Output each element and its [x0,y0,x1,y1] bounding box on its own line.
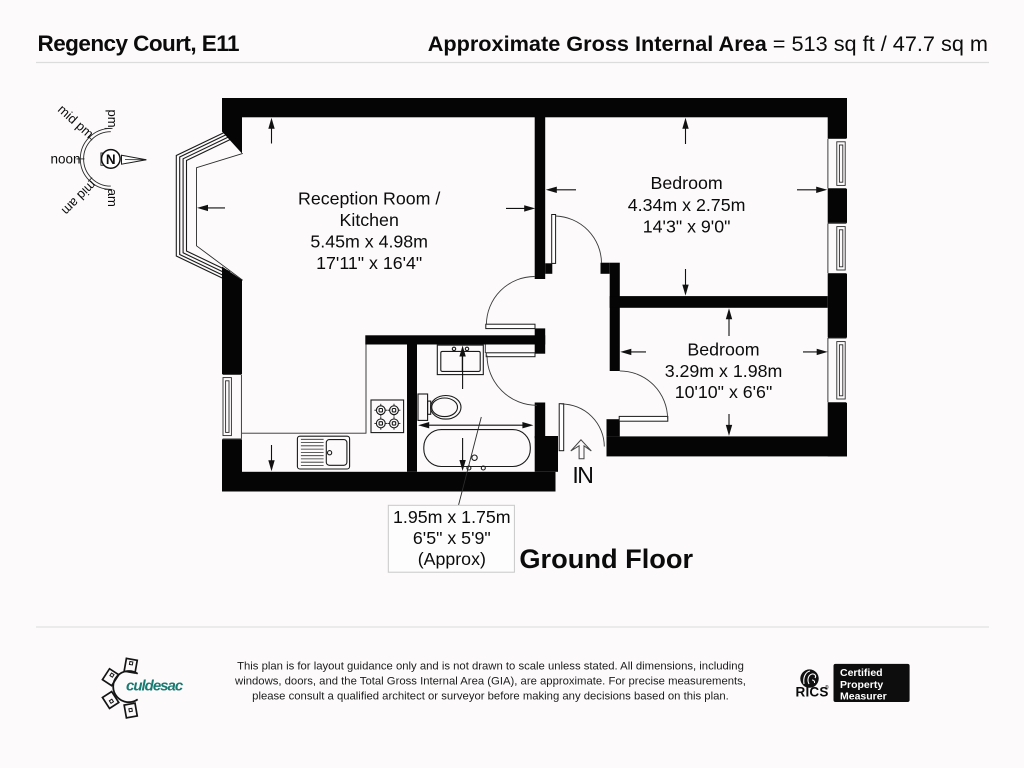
svg-text:am: am [105,189,120,207]
svg-text:6'5" x 5'9": 6'5" x 5'9" [413,528,491,548]
svg-text:4.34m x 2.75m: 4.34m x 2.75m [628,195,746,215]
svg-text:RICS: RICS [796,685,829,700]
svg-text:IN: IN [572,462,592,488]
svg-text:3.29m x 1.98m: 3.29m x 1.98m [665,361,783,381]
svg-text:Property: Property [840,679,883,691]
svg-text:Ground Floor: Ground Floor [519,543,693,574]
svg-text:17'11" x 16'4": 17'11" x 16'4" [316,253,422,273]
svg-text:culdesac: culdesac [126,678,184,695]
svg-text:Bedroom: Bedroom [651,173,723,193]
svg-text:Measurer: Measurer [840,691,887,703]
svg-text:Reception Room /: Reception Room / [298,189,440,209]
svg-text:Bedroom: Bedroom [687,340,759,360]
svg-text:windows, doors, and the Total: windows, doors, and the Total Gross Inte… [234,676,746,688]
svg-text:please consult a qualified arc: please consult a qualified architect or … [252,691,729,703]
svg-text:10'10" x 6'6": 10'10" x 6'6" [675,382,773,402]
svg-text:noon: noon [50,151,80,166]
svg-text:(Approx): (Approx) [418,549,486,569]
svg-text:1.95m x 1.75m: 1.95m x 1.75m [393,507,511,527]
svg-text:pm: pm [105,109,120,127]
svg-text:5.45m x 4.98m: 5.45m x 4.98m [310,232,428,252]
svg-text:14'3" x 9'0": 14'3" x 9'0" [643,216,731,236]
svg-text:This plan is for layout guidan: This plan is for layout guidance only an… [237,661,744,673]
svg-text:Certified: Certified [840,667,883,679]
svg-text:Regency Court, E11: Regency Court, E11 [38,31,239,56]
svg-text:N: N [106,152,116,167]
svg-text:Kitchen: Kitchen [340,210,399,230]
svg-text:Approximate Gross Internal Are: Approximate Gross Internal Area = 513 sq… [428,31,988,56]
svg-text:®: ® [825,684,829,691]
